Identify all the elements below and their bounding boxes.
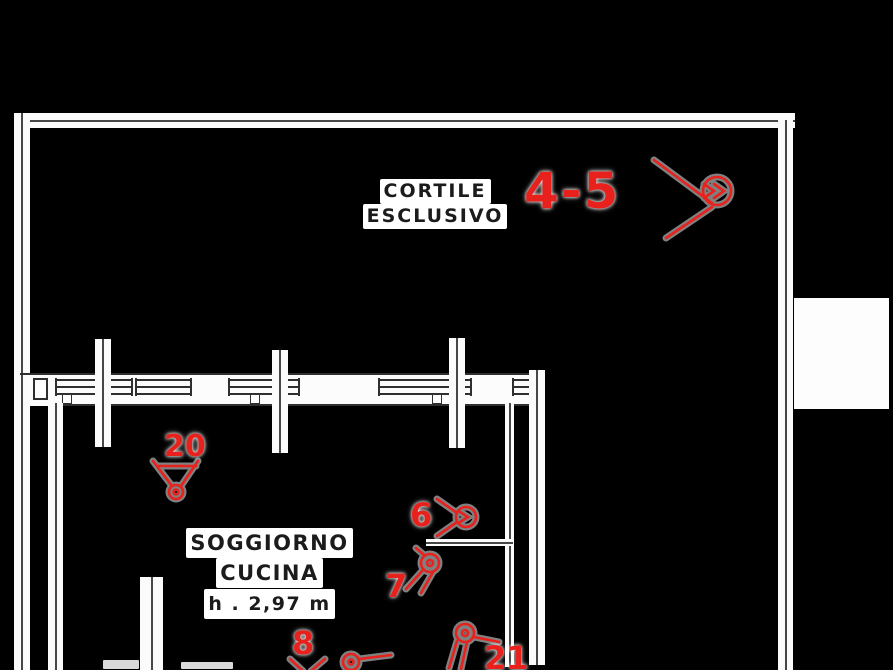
pillar	[272, 350, 288, 453]
photo-marker-label-8: 8	[292, 627, 314, 659]
pillar	[449, 338, 465, 448]
room-label-line: CUCINA	[216, 558, 323, 588]
wall-inner-right-b	[529, 370, 545, 665]
camera-icon-4-5	[654, 160, 731, 238]
wall-left	[14, 113, 30, 670]
wall-inner-left	[48, 403, 63, 670]
window-end-bracket	[33, 378, 48, 400]
wall-right	[778, 120, 793, 670]
window-glazing	[228, 373, 300, 406]
window-symbol	[62, 394, 72, 404]
camera-icon-20	[153, 461, 198, 499]
wall-top	[16, 113, 795, 128]
room-label-soggiorno: SOGGIORNO CUCINA h . 2,97 m	[182, 528, 357, 619]
camera-icon-bottom	[343, 654, 391, 670]
cutoff-marker-halo	[181, 662, 233, 669]
window-glazing	[135, 373, 192, 406]
room-height-note: h . 2,97 m	[204, 589, 334, 619]
room-label-line: SOGGIORNO	[186, 528, 352, 558]
adjacent-area-fill	[794, 298, 889, 409]
camera-icon-7	[406, 548, 439, 593]
photo-marker-label-7: 7	[385, 570, 407, 602]
floorplan-canvas: CORTILE ESCLUSIVO SOGGIORNO CUCINA h . 2…	[0, 0, 893, 670]
photo-marker-label-6: 6	[410, 499, 432, 531]
wall-partition	[140, 577, 163, 670]
photo-marker-label-20: 20	[164, 432, 206, 462]
counter-line	[426, 539, 513, 546]
wall-inner-right-a	[505, 403, 514, 667]
room-label-cortile: CORTILE ESCLUSIVO	[355, 179, 515, 229]
window-symbol	[432, 394, 442, 404]
room-label-line: ESCLUSIVO	[363, 204, 508, 229]
room-label-line: CORTILE	[380, 179, 491, 204]
pillar	[95, 339, 111, 447]
camera-icon-6	[437, 499, 476, 536]
photo-marker-label-4-5: 4-5	[524, 166, 620, 216]
photo-marker-glyphs	[0, 0, 893, 670]
photo-marker-label-21: 21	[484, 642, 529, 670]
window-symbol	[250, 394, 260, 404]
cutoff-marker-halo	[103, 660, 139, 669]
